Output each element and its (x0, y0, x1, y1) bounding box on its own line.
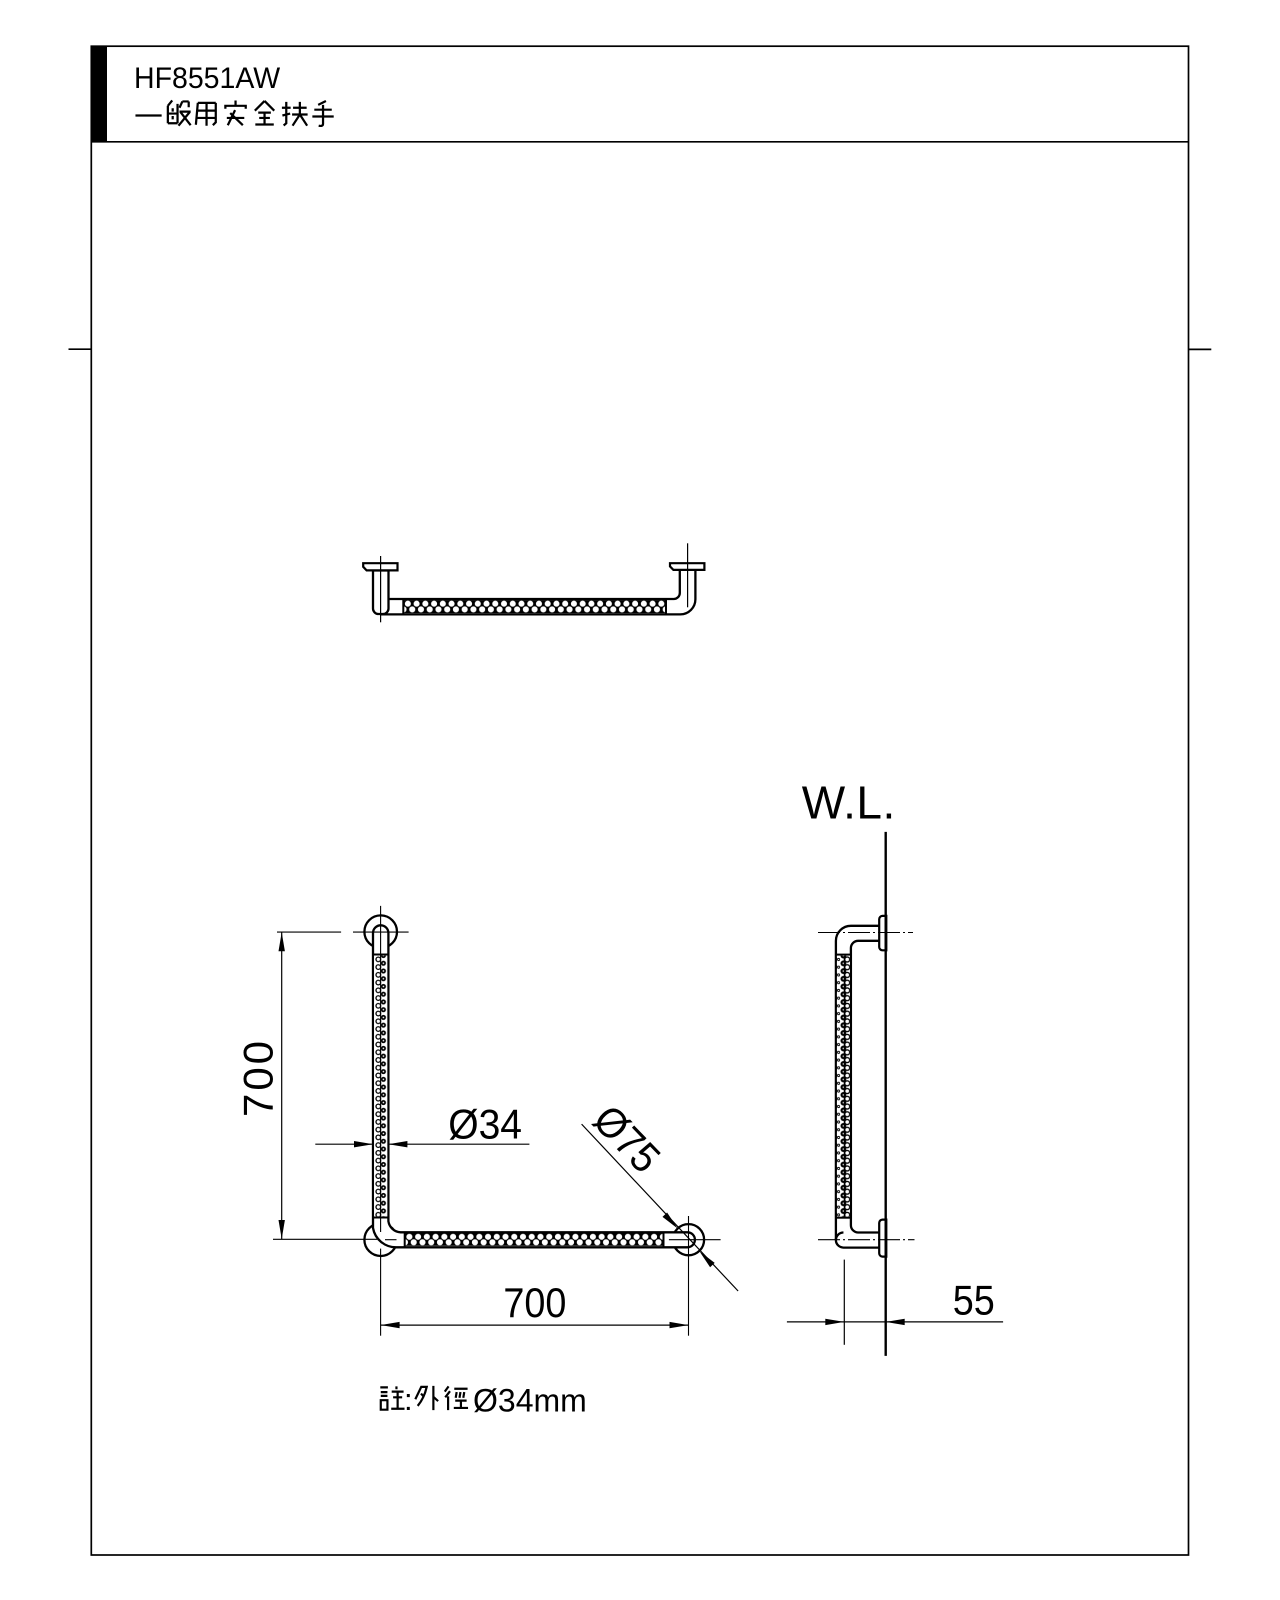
svg-text:W.L.: W.L. (802, 777, 896, 829)
svg-text:Ø34mm: Ø34mm (473, 1383, 587, 1419)
svg-text:Ø34: Ø34 (448, 1100, 522, 1148)
svg-text:700: 700 (503, 1280, 566, 1326)
svg-text::: : (404, 1382, 413, 1417)
svg-text:700: 700 (234, 1038, 281, 1117)
svg-text:HF8551AW: HF8551AW (134, 62, 281, 95)
svg-text:55: 55 (953, 1278, 995, 1324)
